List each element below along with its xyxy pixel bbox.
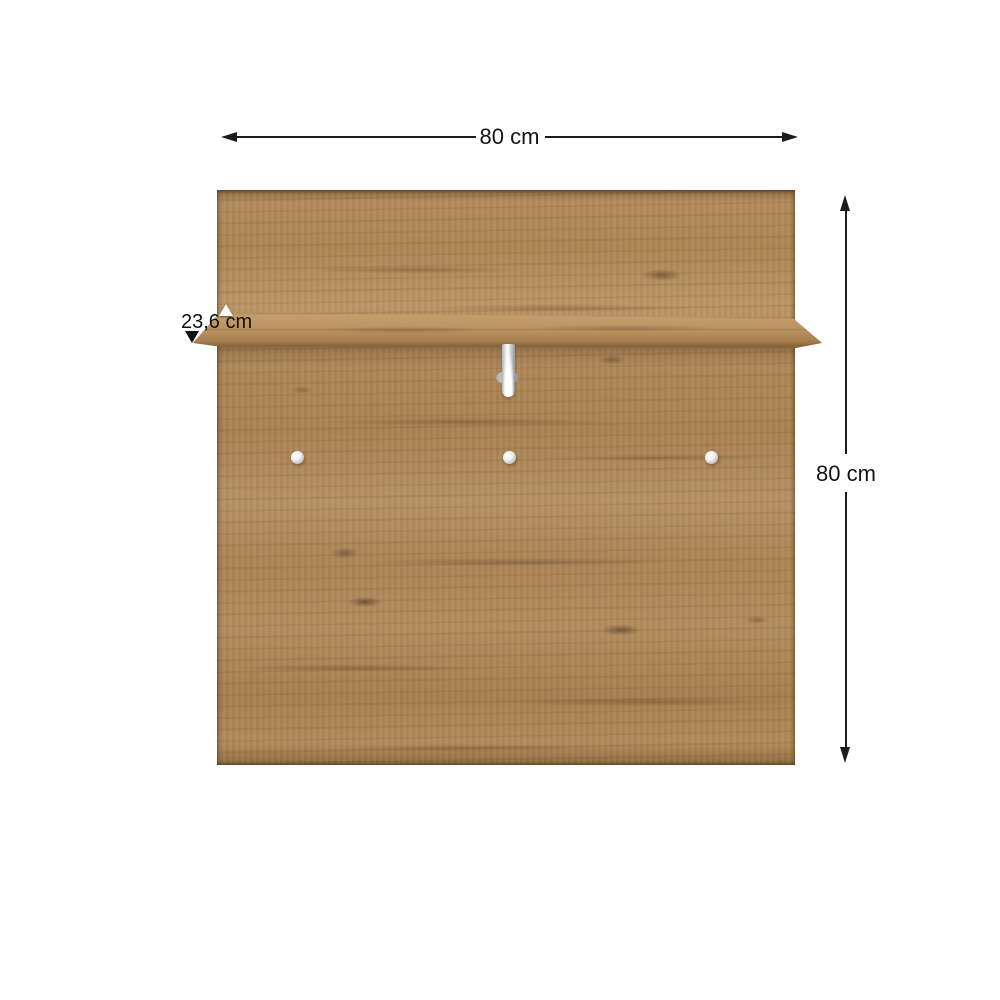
width-dimension-label: 80 cm [480,126,540,148]
height-dimension-line-bottom [845,492,847,750]
knob-hook-center [503,451,516,464]
arrow-down-icon [185,331,199,343]
height-dimension-label: 80 cm [816,463,876,485]
height-dimension: 80 cm [829,195,863,763]
product-diagram: 80 cm 80 cm 23,6 cm [0,0,1000,1000]
knob-hook-left [291,451,304,464]
coat-hook [502,344,515,397]
arrow-down-icon [840,747,850,763]
width-dimension-line-left [234,136,476,138]
width-dimension-line-right [545,136,785,138]
height-dimension-line-top [845,208,847,454]
arrow-right-icon [782,132,798,142]
width-dimension: 80 cm [221,125,798,149]
wood-panel [217,190,795,765]
knob-hook-right [705,451,718,464]
shelf-depth-label: 23,6 cm [181,311,252,333]
